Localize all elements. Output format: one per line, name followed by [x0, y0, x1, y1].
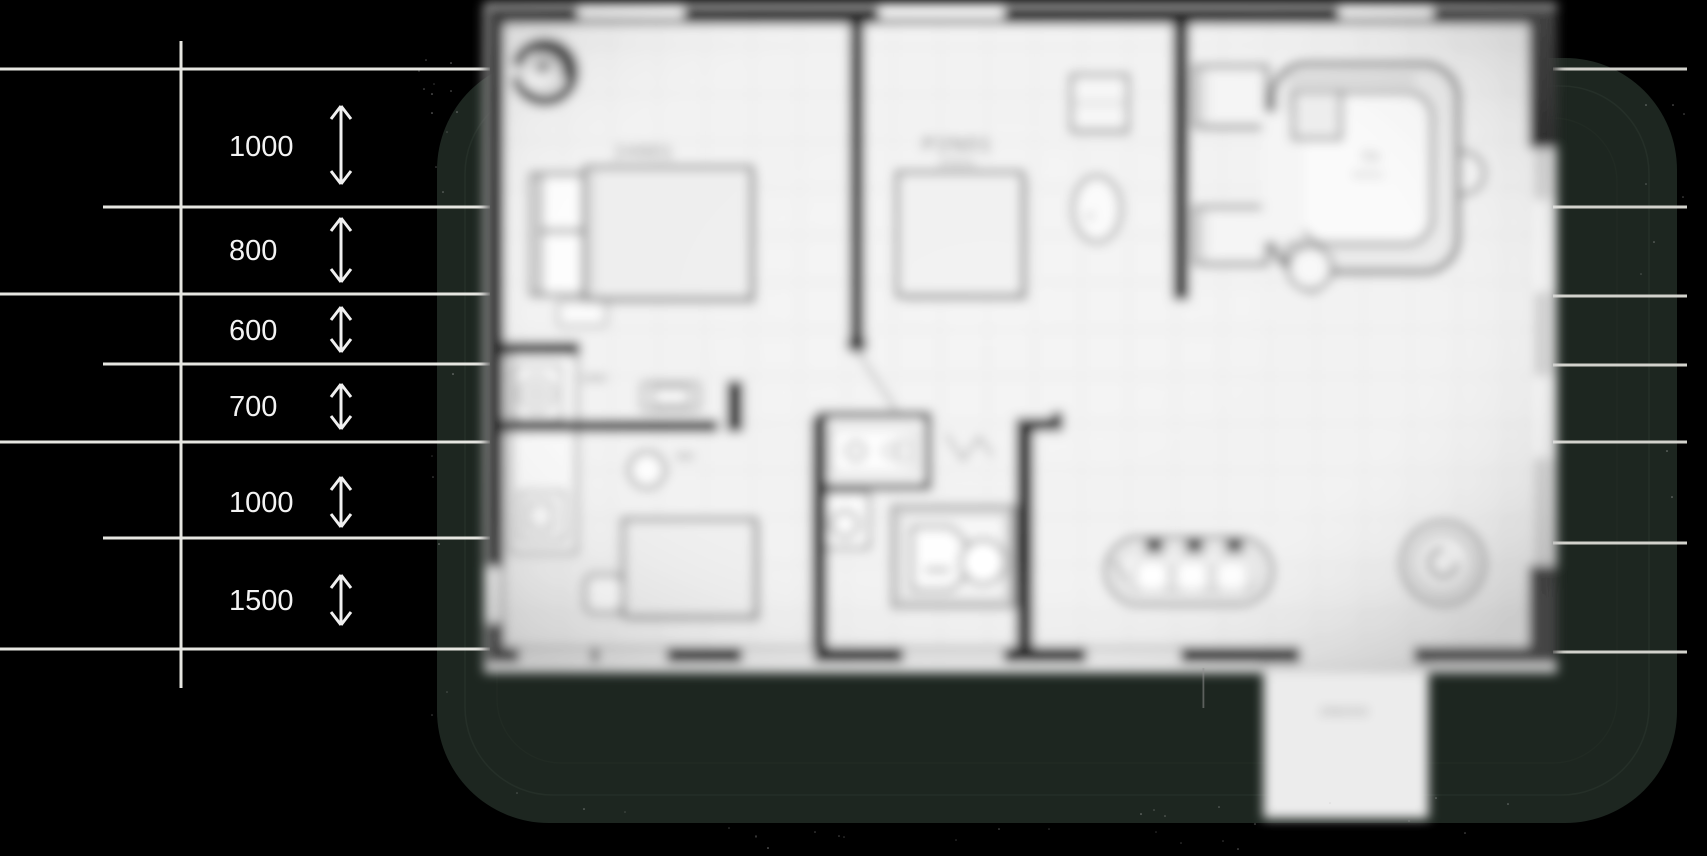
svg-text:600: 600 — [229, 315, 277, 347]
svg-text:1500: 1500 — [229, 585, 294, 617]
svg-text:700: 700 — [229, 391, 277, 423]
svg-text:2N0X0: 2N0X0 — [1320, 704, 1370, 719]
svg-text:1000: 1000 — [229, 131, 294, 163]
svg-text:800: 800 — [229, 235, 277, 267]
svg-text:1000: 1000 — [229, 487, 294, 519]
